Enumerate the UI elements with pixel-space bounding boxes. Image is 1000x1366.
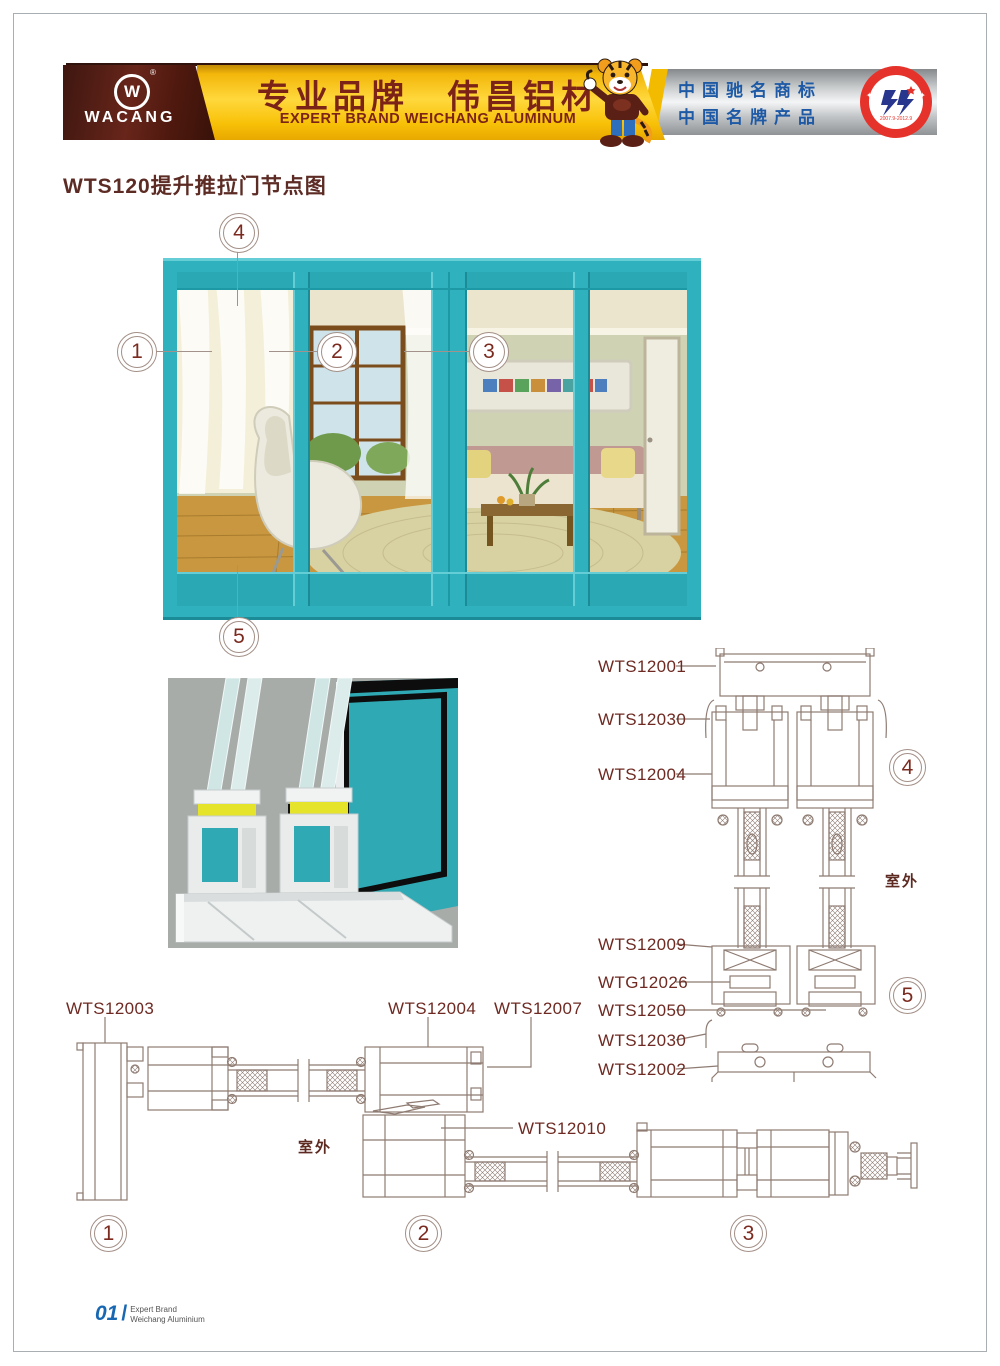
footer-caption: Expert Brand Weichang Aluminium [130, 1302, 205, 1325]
honor-line-1: 中国驰名商标 [678, 77, 858, 104]
china-top-brand-badge-icon: 中国名牌 CHINA TOP BRAND ✦ ✦ 2007.9-2012.9 [858, 64, 934, 140]
honor-line-2: 中国名牌产品 [678, 104, 858, 131]
outdoor-label: 室外 [298, 1136, 332, 1157]
honor-lines: 中国驰名商标 中国名牌产品 [678, 77, 858, 131]
registered-mark: ® [150, 68, 156, 77]
part-label: WTS12009 [598, 935, 686, 955]
part-label: WTS12004 [598, 765, 686, 785]
footer: 01 / Expert Brand Weichang Aluminium [95, 1302, 205, 1326]
badge-star-right: ✦ [919, 91, 926, 100]
outdoor-label: 室外 [885, 870, 919, 891]
part-label: WTS12003 [66, 999, 154, 1019]
profile-3d-render [168, 678, 458, 948]
callout-4: 4 [219, 213, 259, 253]
leader-4 [237, 251, 238, 306]
leader-2 [269, 351, 317, 352]
horizontal-section-drawing [55, 995, 965, 1230]
tiger-mascot-icon [575, 56, 665, 153]
badge-star-left: ✦ [866, 91, 873, 100]
footer-slash: / [121, 1302, 127, 1326]
detail-callout-1: 1 [90, 1215, 127, 1252]
leader-5 [237, 565, 238, 617]
callout-2: 2 [317, 332, 357, 372]
wacang-logo-icon: W [114, 74, 150, 110]
logo-wordmark: WACANG [78, 109, 182, 127]
sliding-door-photo [163, 258, 701, 620]
part-label: WTG12026 [598, 973, 688, 993]
part-label: WTS12030 [598, 710, 686, 730]
detail-callout-2: 2 [405, 1215, 442, 1252]
detail-callout-3: 3 [730, 1215, 767, 1252]
part-label: WTS12007 [494, 999, 582, 1019]
leader-1 [155, 351, 212, 352]
part-label: WTS12010 [518, 1119, 606, 1139]
callout-1: 1 [117, 332, 157, 372]
badge-dates: 2007.9-2012.9 [880, 116, 912, 122]
page-title: WTS120提升推拉门节点图 [63, 170, 327, 200]
part-label: WTS12004 [388, 999, 476, 1019]
page-number: 01 [95, 1302, 118, 1326]
detail-callout-4: 4 [889, 749, 926, 786]
part-label: WTS12001 [598, 657, 686, 677]
callout-3: 3 [469, 332, 509, 372]
callout-5: 5 [219, 617, 259, 657]
leader-3 [404, 351, 469, 352]
catalog-page: { "header": { "logo": {"brand": "WACANG"… [0, 0, 1000, 1366]
